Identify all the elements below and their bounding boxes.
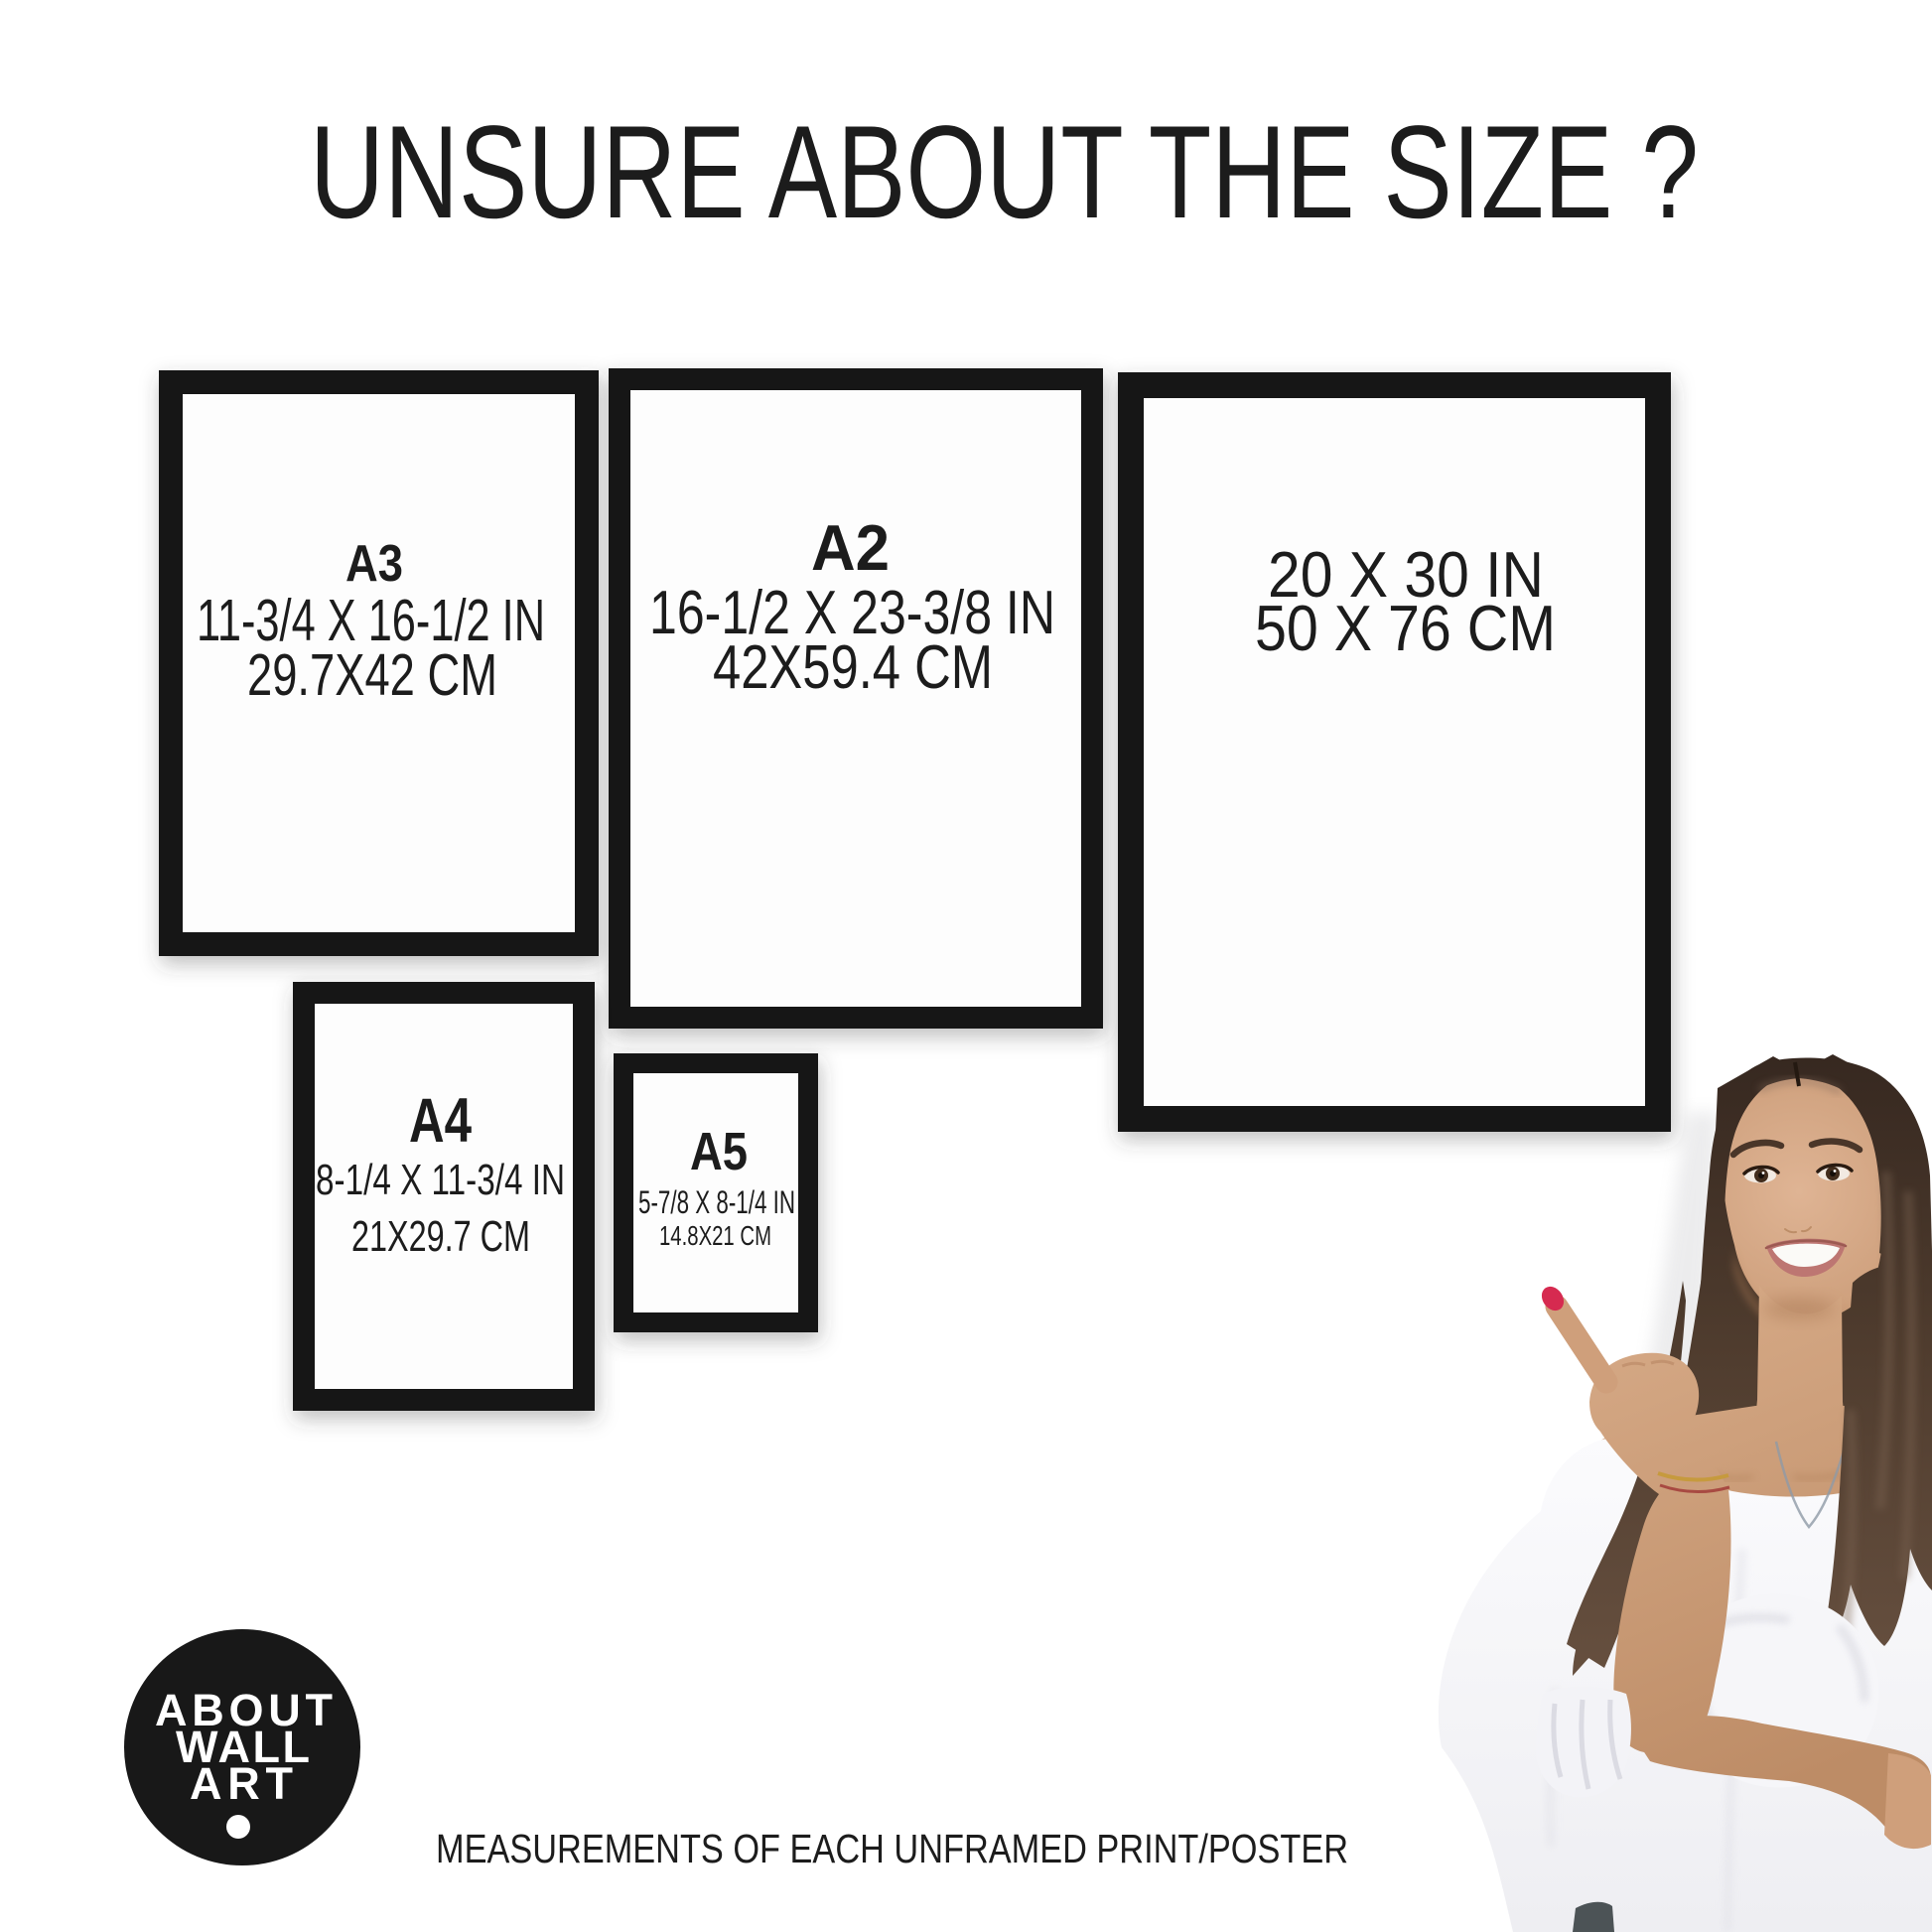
svg-text:A3: A3 xyxy=(345,535,403,593)
svg-text:14.8X21 CM: 14.8X21 CM xyxy=(659,1220,771,1251)
svg-text:UNSURE ABOUT THE SIZE ?: UNSURE ABOUT THE SIZE ? xyxy=(310,99,1699,246)
svg-text:21X29.7 CM: 21X29.7 CM xyxy=(351,1212,530,1261)
svg-text:A5: A5 xyxy=(690,1122,748,1181)
svg-text:8-1/4 X 11-3/4 IN: 8-1/4 X 11-3/4 IN xyxy=(316,1156,565,1204)
svg-text:29.7X42 CM: 29.7X42 CM xyxy=(247,642,497,708)
svg-text:50 X 76 CM: 50 X 76 CM xyxy=(1255,592,1556,664)
svg-text:A2: A2 xyxy=(811,511,890,584)
svg-text:42X59.4 CM: 42X59.4 CM xyxy=(713,633,993,702)
svg-text:ART: ART xyxy=(190,1758,293,1809)
svg-text:MEASUREMENTS OF EACH UNFRAMED: MEASUREMENTS OF EACH UNFRAMED PRINT/POST… xyxy=(436,1826,1348,1871)
svg-text:5-7/8 X 8-1/4 IN: 5-7/8 X 8-1/4 IN xyxy=(638,1184,795,1220)
svg-text:A4: A4 xyxy=(409,1086,472,1156)
